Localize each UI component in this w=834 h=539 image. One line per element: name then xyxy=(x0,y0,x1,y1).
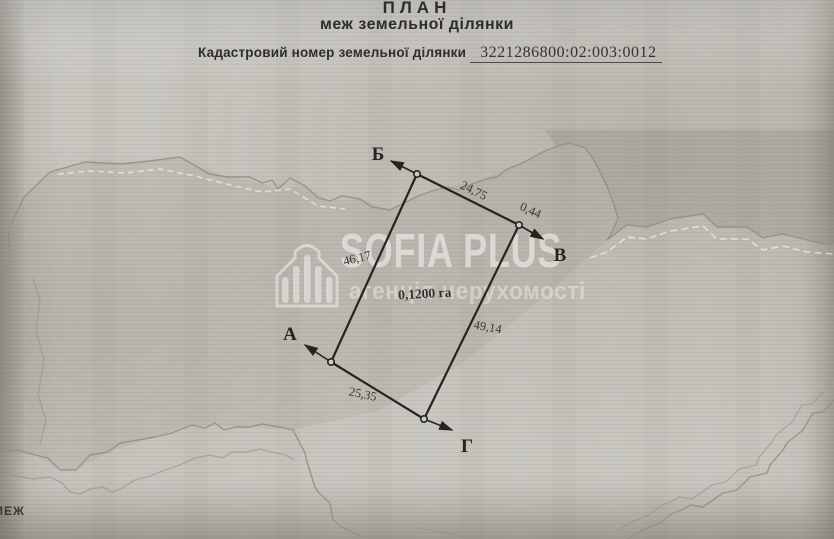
side-length-v-short: 0,44 xyxy=(518,200,544,222)
side-length-vg: 49,14 xyxy=(473,318,504,337)
scanned-land-plan-page: SOFIA PLUS агенція нерухомості Б В А Г 2… xyxy=(0,0,834,539)
vertex-marker-b xyxy=(414,171,420,177)
corner-arrow-g xyxy=(424,419,452,430)
side-length-ab: 46,17 xyxy=(342,248,373,268)
page-subtitle: меж земельної ділянки xyxy=(0,16,834,34)
cadastral-label: Кадастровий номер земельної ділянки xyxy=(198,45,466,60)
corner-label-g: Г xyxy=(461,436,473,457)
side-length-bv: 24,75 xyxy=(458,178,489,203)
corner-label-b: Б xyxy=(372,144,385,165)
corner-arrow-v xyxy=(519,225,543,239)
vertex-marker-g xyxy=(421,416,427,422)
vertex-marker-v xyxy=(516,222,522,228)
corner-arrow-b xyxy=(391,161,417,174)
vertex-marker-a xyxy=(328,359,334,365)
cadastral-row: Кадастровий номер земельної ділянки32212… xyxy=(198,44,662,62)
map-edge-note: МЕЖ xyxy=(0,504,25,518)
area-label: 0,1200 га xyxy=(398,285,452,303)
parcel-drawing: Б В А Г 24,75 0,44 49,14 25,35 46,17 0,1… xyxy=(0,0,834,539)
corner-label-v: В xyxy=(554,245,567,266)
cadastral-number: 3221286800:02:003:0012 xyxy=(470,44,662,63)
corner-arrow-a xyxy=(305,345,331,362)
corner-label-a: А xyxy=(283,324,297,345)
